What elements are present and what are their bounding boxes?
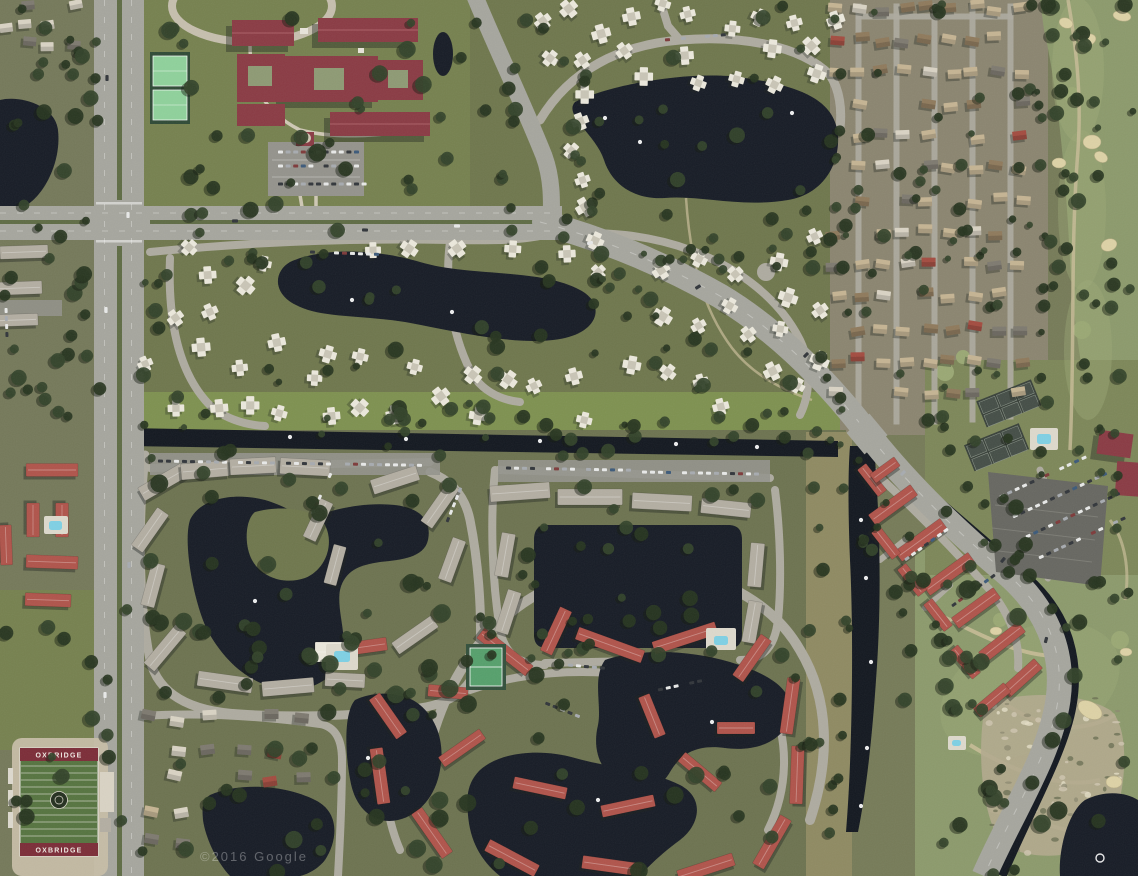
watermark: ©2016 Google <box>200 849 308 864</box>
satellite-map-canvas[interactable]: OXBRIDGE OXBRIDGE ©2016 Google <box>0 0 1138 876</box>
image-grain <box>0 0 1138 876</box>
aerial-imagery: OXBRIDGE OXBRIDGE ©2016 Google <box>0 0 1138 876</box>
